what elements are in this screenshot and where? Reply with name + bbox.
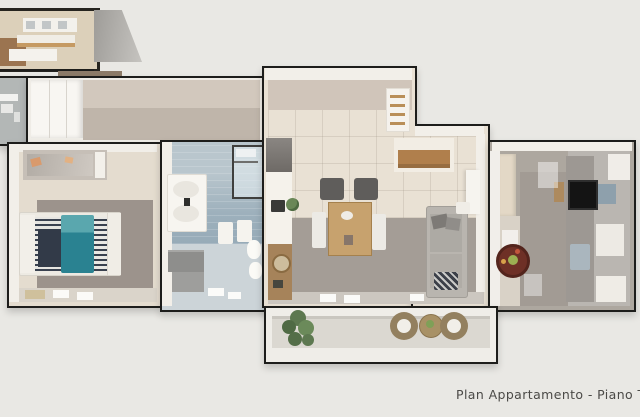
dining-chair-white (372, 214, 386, 250)
inset-cabinet-row (23, 18, 77, 32)
fridge (266, 138, 292, 172)
chair-cushion (447, 319, 461, 333)
white-cabinet (596, 224, 624, 256)
study-left-wall (490, 151, 500, 306)
storage-box (172, 272, 204, 292)
table-item (344, 235, 353, 245)
bidet (249, 262, 262, 279)
floor-light-patch (228, 292, 241, 299)
teal-duvet (61, 215, 94, 273)
study-top-wall (492, 142, 632, 151)
gray-blue-panel (598, 184, 616, 204)
wardrobe-closet (31, 80, 83, 138)
floor-light-patch (208, 288, 224, 296)
storage-box (168, 250, 204, 272)
side-table (456, 202, 470, 214)
doormat (25, 290, 45, 299)
floor-light-patch (524, 274, 542, 296)
round-red-table (496, 244, 530, 278)
table-dish (501, 259, 506, 264)
towel (237, 220, 252, 242)
dining-chair-white (312, 212, 326, 248)
sofa-pillow (445, 217, 461, 231)
inset-shadow (94, 10, 142, 62)
wood-shelf (390, 122, 405, 125)
plant-leaves (302, 334, 314, 346)
dresser-end (95, 152, 105, 178)
sink-bowl (173, 181, 199, 198)
door-panel (500, 154, 516, 216)
mirror-reflection (65, 156, 74, 163)
faucet (184, 198, 190, 206)
chair-cushion (397, 319, 411, 333)
striped-pillows (94, 217, 107, 271)
shower-bar (234, 161, 258, 163)
wood-shelf (390, 95, 405, 98)
table-plant (426, 320, 434, 328)
sofa (426, 202, 472, 298)
dark-item (273, 280, 283, 288)
plant-leaves (288, 332, 302, 346)
notch-top-wall (413, 126, 484, 136)
sideboard (394, 138, 454, 172)
living-dining-room (262, 66, 490, 308)
utility-fixture (14, 112, 20, 122)
rattan-chair (390, 312, 418, 340)
balcony-plant (282, 308, 320, 350)
inset-cabinet-row (17, 35, 75, 47)
floor-light-patch (344, 295, 360, 303)
dining-chair-dark (354, 178, 378, 200)
plate (341, 211, 353, 220)
bedroom (7, 142, 163, 308)
hallway-floor (83, 108, 260, 140)
floor-light-patch (320, 294, 336, 302)
plant (286, 198, 299, 211)
living-right-wall (476, 134, 485, 292)
living-top-wall (265, 68, 412, 80)
cooktop (271, 200, 285, 212)
dining-table (328, 202, 372, 256)
towel (218, 222, 233, 244)
shower-shelf (236, 149, 256, 157)
floor-light-patch (410, 294, 424, 301)
utility-fixture (1, 104, 13, 113)
floorplan-render: Plan Appartamento - Piano Terzo (0, 0, 640, 417)
bedroom-left-wall (9, 144, 19, 302)
bed-rail (20, 215, 35, 273)
inset-cabinet-row (9, 49, 57, 61)
double-bed (19, 212, 121, 276)
table-dish (515, 249, 520, 254)
study-room (488, 140, 636, 312)
toilet (247, 240, 261, 259)
shower (232, 145, 264, 199)
sink-bowl (173, 205, 199, 222)
shelf-unit (386, 88, 410, 132)
blue-cabinet (570, 244, 590, 270)
striped-blanket (434, 272, 458, 290)
bathroom (160, 140, 268, 312)
tv-screen (568, 180, 598, 210)
utility-shelf (0, 94, 18, 101)
sideboard-wood-front (398, 150, 450, 168)
wardrobe-seam (49, 80, 50, 138)
table-plant (508, 255, 518, 265)
rattan-chair (440, 312, 468, 340)
wood-shelf (390, 113, 405, 116)
wall-unit (566, 156, 594, 302)
floor-light-patch (77, 292, 93, 300)
neighbor-unit-inset (0, 8, 100, 72)
plan-caption: Plan Appartamento - Piano Terzo (456, 387, 640, 402)
headboard (107, 213, 121, 275)
white-cabinet (608, 154, 630, 180)
utility-room (0, 76, 28, 146)
floor-light-patch (538, 162, 558, 188)
wood-cabinet (268, 244, 292, 300)
basin (272, 254, 291, 273)
dining-set (312, 178, 396, 262)
dining-chair-dark (320, 178, 344, 200)
inset-wood-counter (17, 43, 75, 47)
inset-cabinet-doors (26, 21, 74, 29)
wardrobe-seam (66, 80, 67, 138)
balcony (264, 306, 498, 364)
hallway-wall (83, 80, 260, 108)
white-cabinet (596, 276, 626, 302)
dresser-with-mirror (23, 150, 107, 180)
sink-cabinet (167, 174, 207, 232)
wood-shelf (390, 104, 405, 107)
floor-light-patch (53, 290, 69, 298)
hallway (26, 76, 266, 146)
